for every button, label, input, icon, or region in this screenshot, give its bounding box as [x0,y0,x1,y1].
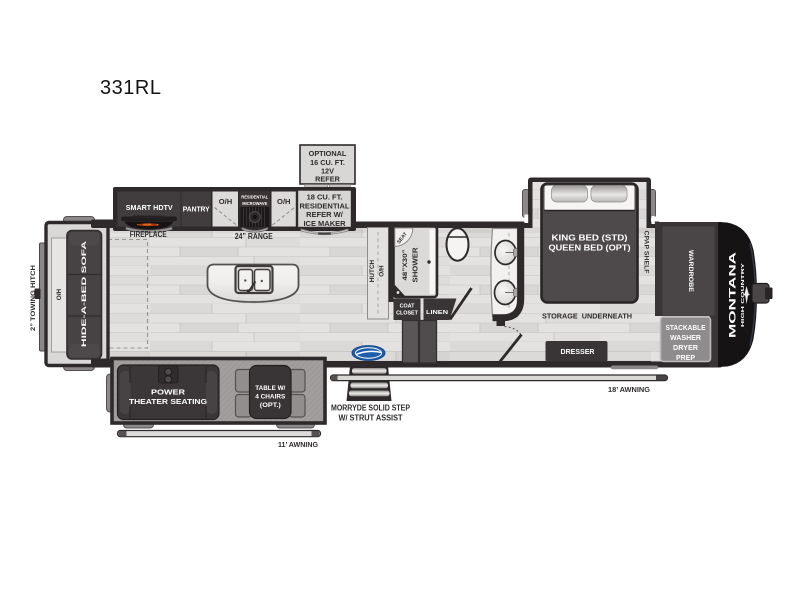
svg-text:PREP: PREP [676,353,695,362]
svg-text:MICROWAVE: MICROWAVE [242,201,267,206]
svg-text:SMART HDTV: SMART HDTV [126,203,173,212]
svg-text:QUEEN BED (OPT): QUEEN BED (OPT) [549,244,631,253]
svg-text:SHOWER: SHOWER [413,248,420,283]
svg-text:STACKABLE: STACKABLE [666,323,706,332]
svg-text:THEATER SEATING: THEATER SEATING [129,397,207,406]
svg-text:HUTCH: HUTCH [369,259,376,282]
svg-text:RESIDENTIAL: RESIDENTIAL [300,202,350,211]
svg-text:O/H: O/H [219,197,233,206]
svg-text:18 CU. FT.: 18 CU. FT. [307,193,343,202]
svg-text:FIREPLACE: FIREPLACE [130,230,168,239]
svg-text:OPTIONAL: OPTIONAL [309,149,347,158]
svg-text:MORRYDE SOLID STEP: MORRYDE SOLID STEP [331,404,410,413]
svg-text:ICE MAKER: ICE MAKER [303,219,346,228]
svg-text:LINEN: LINEN [426,310,448,316]
svg-text:O/H: O/H [379,265,386,277]
svg-text:(OPT.): (OPT.) [260,402,281,409]
svg-text:W/ STRUT ASSIST: W/ STRUT ASSIST [339,414,403,423]
svg-text:WARDROBE: WARDROBE [687,250,694,293]
svg-text:O/H: O/H [56,288,63,300]
svg-text:POWER: POWER [151,388,186,397]
svg-text:TABLE W/: TABLE W/ [255,385,285,392]
svg-text:DRYER: DRYER [673,343,699,352]
svg-text:PANTRY: PANTRY [183,205,210,214]
svg-text:O/H: O/H [277,197,291,206]
svg-text:4 CHAIRS: 4 CHAIRS [255,394,286,401]
svg-text:COAT: COAT [400,304,416,310]
svg-text:REFER W/: REFER W/ [306,210,344,219]
svg-text:DRESSER: DRESSER [561,349,595,356]
svg-text:RESIDENTIAL: RESIDENTIAL [241,195,268,200]
svg-text:HIDE-A-BED SOFA: HIDE-A-BED SOFA [81,240,88,347]
svg-text:11’ AWNING: 11’ AWNING [278,442,319,449]
svg-text:CPAP SHELF: CPAP SHELF [643,231,650,274]
svg-text:WASHER: WASHER [670,333,702,342]
svg-text:CLOSET: CLOSET [396,311,419,317]
svg-text:2” TOWING HITCH: 2” TOWING HITCH [30,265,37,331]
svg-text:18’ AWNING: 18’ AWNING [608,387,651,394]
svg-text:KING BED (STD): KING BED (STD) [552,234,628,243]
svg-text:24” RANGE: 24” RANGE [235,232,274,241]
svg-text:STORAGE UNDERNEATH: STORAGE UNDERNEATH [542,312,632,321]
svg-text:MONTANA: MONTANA [728,251,738,338]
svg-text:REFER: REFER [315,175,340,184]
svg-text:48”X30”: 48”X30” [402,250,409,281]
svg-text:331RL: 331RL [100,77,161,99]
